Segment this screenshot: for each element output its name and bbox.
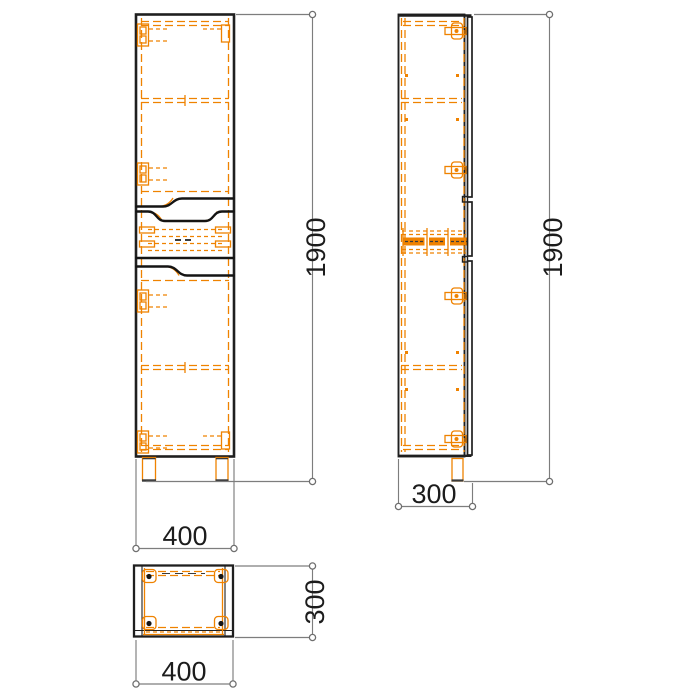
dimension-label-side-height: 1900: [538, 217, 568, 277]
dimension-label-side-depth: 300: [411, 479, 456, 509]
technical-drawing-canvas: 1900 400 1900 300: [0, 0, 700, 700]
front-view: [136, 15, 234, 481]
dimension-label-front-width: 400: [162, 521, 207, 551]
dimension-label-top-depth: 300: [300, 579, 330, 624]
dimension-top-width: 400: [133, 640, 236, 687]
leg-screw-dot: [146, 621, 151, 626]
three-view-drawing: 1900 400 1900 300: [0, 0, 700, 700]
leg-screw-dot: [146, 574, 151, 579]
top-view: [134, 566, 233, 637]
side-view-carcass-outline: [399, 15, 465, 457]
leg-screw-dot: [218, 621, 223, 626]
dimension-label-front-height: 1900: [301, 217, 331, 277]
dimension-side-height: 1900: [464, 11, 568, 484]
drawer-front-edge: [468, 202, 473, 256]
side-view: [398, 15, 472, 482]
front-view-outline: [136, 15, 234, 457]
side-view-leg: [452, 459, 464, 482]
dimension-front-width: 400: [133, 459, 237, 552]
front-view-legs: [142, 458, 229, 481]
leg-screw-dot: [218, 574, 223, 579]
dimension-label-top-width: 400: [161, 657, 206, 687]
dimension-top-depth: 300: [235, 563, 330, 641]
